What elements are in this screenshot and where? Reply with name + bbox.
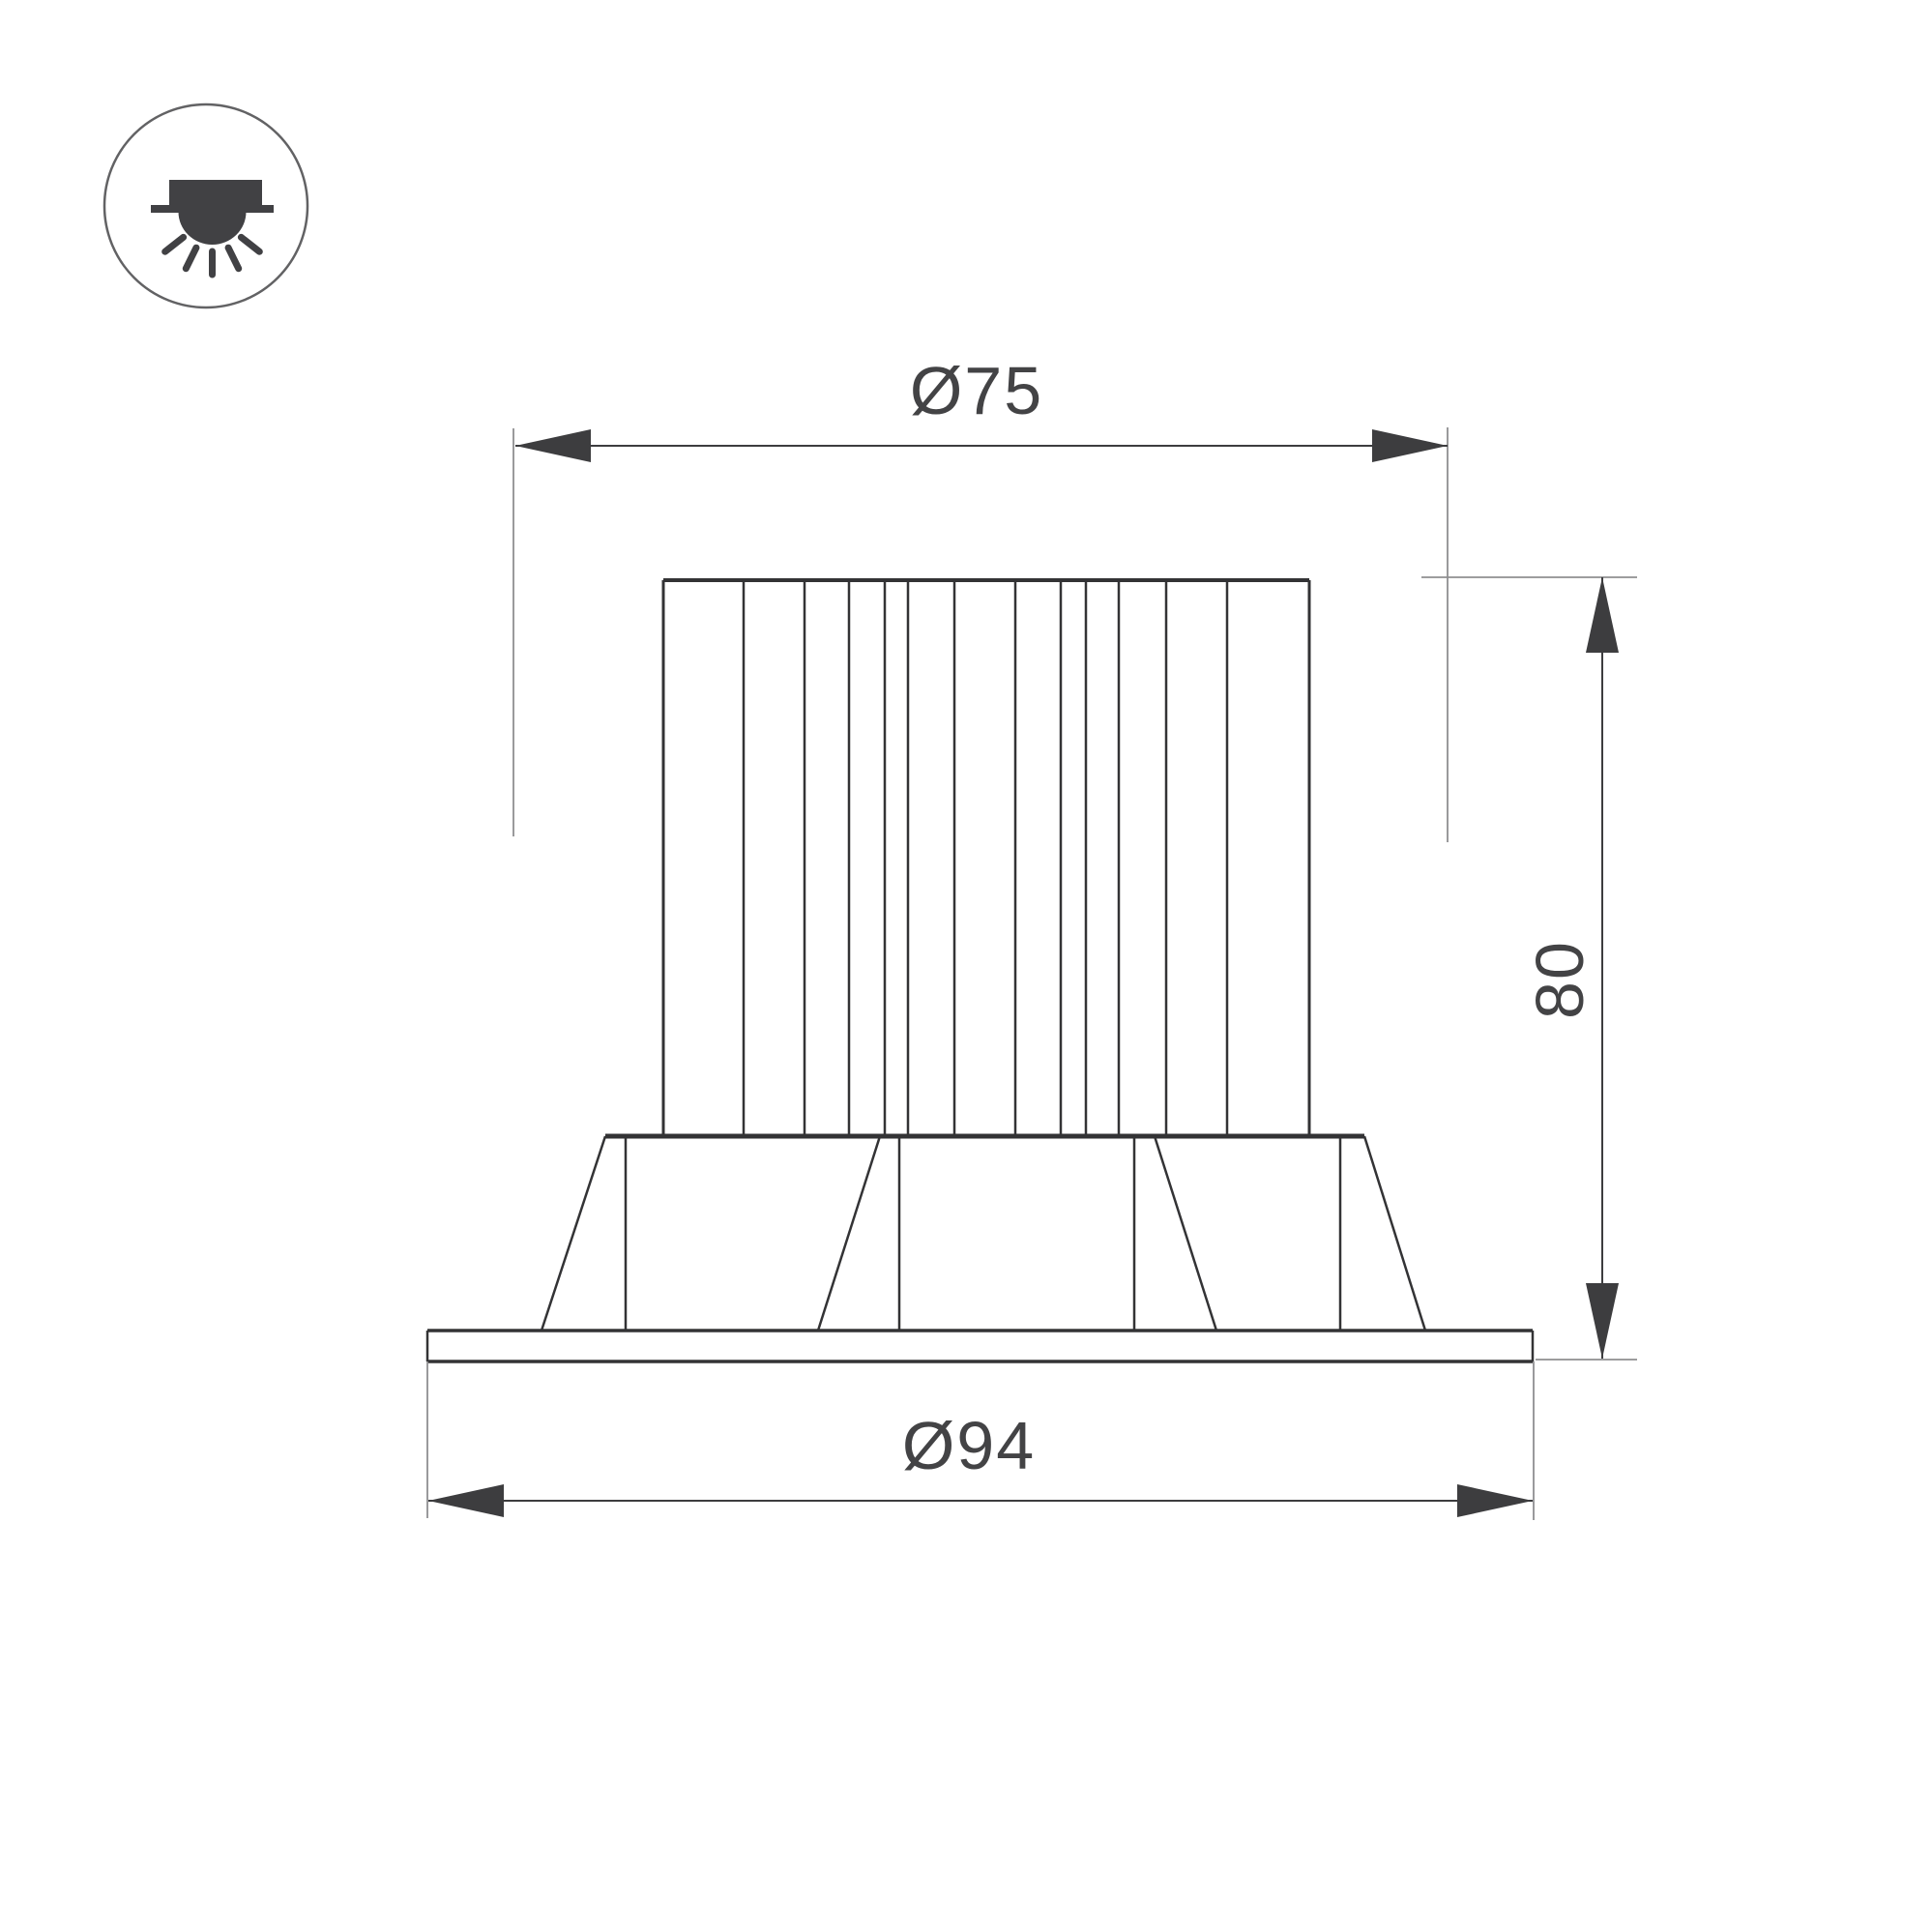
housing-left-slant — [542, 1136, 605, 1331]
housing-clip-slant — [818, 1136, 880, 1331]
housing-right-slant — [1364, 1136, 1425, 1331]
housing-inner-lines — [626, 1136, 1340, 1331]
icon-lamp-body — [169, 180, 262, 207]
dimension-top-diameter — [513, 427, 1448, 842]
trim-flange — [427, 1331, 1533, 1361]
icon-lamp-dome — [179, 212, 247, 245]
arrowhead-left — [428, 1484, 504, 1517]
arrowhead-down — [1586, 1283, 1619, 1359]
drawing-canvas: Ø75 80 Ø94 — [0, 0, 1932, 1932]
arrowhead-left — [515, 429, 591, 462]
recessed-downlight-icon — [104, 104, 307, 307]
housing-clip-slant — [1155, 1136, 1216, 1331]
top-diameter-label: Ø75 — [910, 357, 1043, 424]
arrowhead-right — [1372, 429, 1448, 462]
luminaire-outline — [427, 580, 1533, 1361]
height-label: 80 — [1526, 940, 1594, 1019]
icon-ceiling-flange — [151, 205, 274, 213]
bottom-diameter-label: Ø94 — [902, 1412, 1036, 1479]
housing-body — [542, 1136, 1425, 1331]
arrowhead-up — [1586, 577, 1619, 653]
fin-lines — [744, 580, 1227, 1136]
technical-drawing — [0, 0, 1932, 1932]
heatsink-fins — [663, 580, 1309, 1136]
arrowhead-right — [1457, 1484, 1533, 1517]
